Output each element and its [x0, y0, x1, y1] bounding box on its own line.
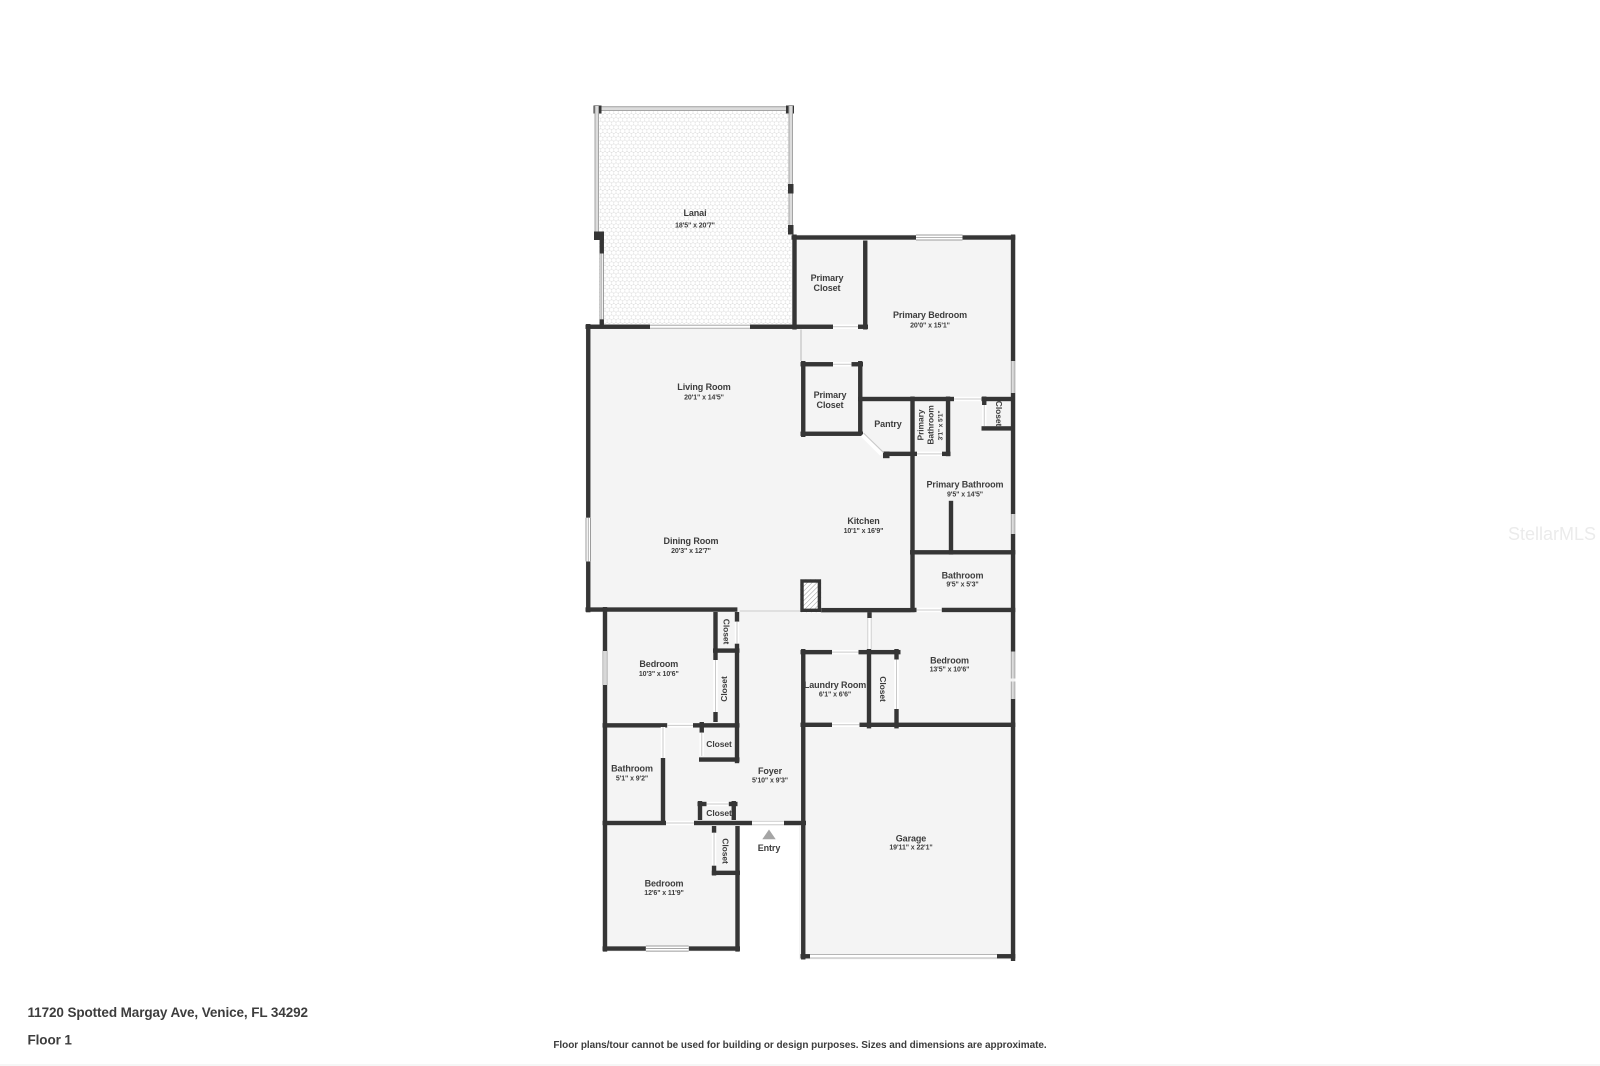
svg-text:Closet: Closet — [817, 400, 844, 410]
svg-text:Garage: Garage — [896, 834, 927, 844]
svg-text:Foyer: Foyer — [758, 766, 783, 776]
svg-text:Laundry Room: Laundry Room — [804, 680, 866, 690]
svg-text:10'3" x 10'6": 10'3" x 10'6" — [639, 671, 679, 678]
svg-text:20'0" x 15'1": 20'0" x 15'1" — [910, 323, 950, 330]
svg-text:StellarMLS: StellarMLS — [1508, 524, 1596, 544]
svg-text:Floor plans/tour cannot be use: Floor plans/tour cannot be used for buil… — [553, 1040, 1047, 1051]
svg-text:Closet: Closet — [814, 283, 841, 293]
svg-text:Closet: Closet — [722, 619, 732, 645]
svg-text:Primary: Primary — [916, 409, 926, 440]
svg-text:Floor 1: Floor 1 — [28, 1033, 73, 1048]
svg-text:Primary: Primary — [811, 273, 844, 283]
svg-text:Closet: Closet — [719, 676, 729, 702]
svg-text:Closet: Closet — [878, 676, 888, 702]
svg-text:Bathroom: Bathroom — [611, 764, 653, 774]
svg-text:6'1" x 6'6": 6'1" x 6'6" — [819, 692, 851, 699]
svg-text:9'5" x 14'5": 9'5" x 14'5" — [947, 492, 983, 499]
svg-text:Closet: Closet — [706, 808, 732, 818]
svg-text:5'1" x 9'2": 5'1" x 9'2" — [616, 776, 648, 783]
svg-text:Primary: Primary — [814, 390, 847, 400]
svg-text:Pantry: Pantry — [874, 419, 902, 429]
svg-text:18'5" x 20'7": 18'5" x 20'7" — [675, 223, 715, 230]
svg-text:Kitchen: Kitchen — [847, 516, 879, 526]
svg-text:Living Room: Living Room — [677, 382, 730, 392]
svg-text:Closet: Closet — [721, 838, 731, 864]
svg-text:10'1" x 16'9": 10'1" x 16'9" — [844, 528, 884, 535]
svg-text:19'11" x 22'1": 19'11" x 22'1" — [889, 845, 932, 852]
svg-text:Primary Bedroom: Primary Bedroom — [893, 310, 967, 320]
svg-text:Bedroom: Bedroom — [930, 656, 969, 666]
svg-text:Primary Bathroom: Primary Bathroom — [927, 480, 1004, 490]
svg-text:13'5" x 10'6": 13'5" x 10'6" — [930, 667, 970, 674]
svg-text:Entry: Entry — [758, 843, 781, 853]
svg-text:Lanai: Lanai — [683, 208, 706, 218]
svg-text:12'6" x 11'9": 12'6" x 11'9" — [644, 890, 683, 897]
svg-text:5'10" x 9'3": 5'10" x 9'3" — [752, 778, 788, 785]
svg-text:3'1" x 5'1": 3'1" x 5'1" — [938, 411, 945, 441]
svg-text:11720 Spotted Margay Ave, Veni: 11720 Spotted Margay Ave, Venice, FL 342… — [28, 1005, 308, 1020]
svg-text:Bathroom: Bathroom — [942, 571, 984, 581]
svg-text:9'5" x 5'3": 9'5" x 5'3" — [946, 582, 978, 589]
svg-text:20'1" x 14'5": 20'1" x 14'5" — [684, 395, 724, 402]
svg-text:Closet: Closet — [706, 739, 732, 749]
svg-text:Dining Room: Dining Room — [664, 536, 719, 546]
svg-text:Closet: Closet — [994, 401, 1004, 427]
svg-text:Bedroom: Bedroom — [645, 879, 684, 889]
svg-text:20'3" x 12'7": 20'3" x 12'7" — [671, 548, 711, 555]
svg-text:Bedroom: Bedroom — [639, 659, 678, 669]
svg-text:Bathroom: Bathroom — [926, 405, 936, 445]
